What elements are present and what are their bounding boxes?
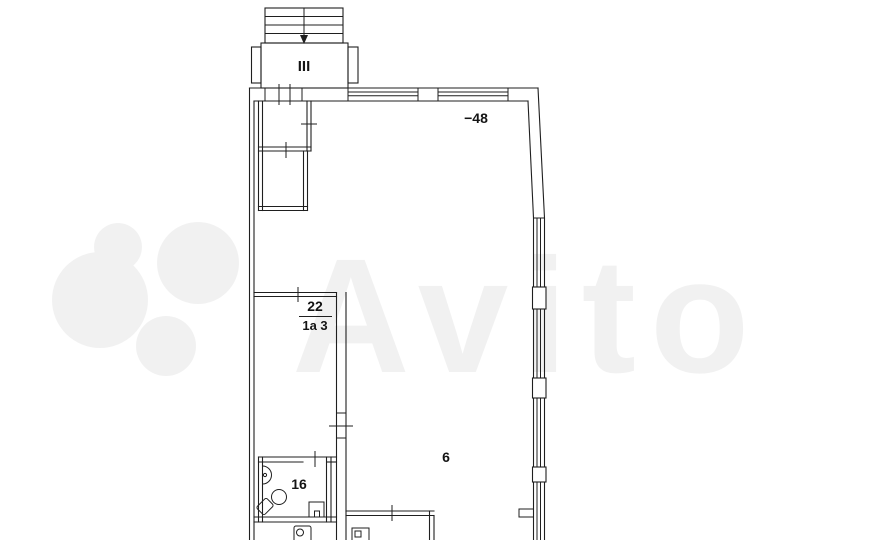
room-top-left-b xyxy=(259,142,308,211)
elevation-mark-label: −48 xyxy=(464,110,488,126)
fixture-icon xyxy=(309,502,324,517)
floor-plan-canvas: Avito III xyxy=(0,0,870,540)
watermark-logo-circle xyxy=(157,222,239,304)
window-pier xyxy=(533,467,547,482)
toilet-icon xyxy=(256,490,286,516)
landing-right-pilaster xyxy=(348,47,358,83)
top-wall-openings xyxy=(265,84,508,105)
fixture-icon xyxy=(294,526,311,540)
floor-plan-image: Avito III xyxy=(0,0,870,540)
bathroom-label: 16 xyxy=(291,476,307,492)
stairwell-label: III xyxy=(298,58,311,75)
watermark-text: Avito xyxy=(292,224,763,407)
staircase: III xyxy=(252,8,359,88)
sink-tap xyxy=(263,473,266,476)
wall-stub xyxy=(519,509,534,517)
window-pier xyxy=(533,287,547,309)
fixture-icon xyxy=(352,528,369,540)
closet-detail-label: 1а 3 xyxy=(302,318,327,333)
bathroom-16: 16 xyxy=(254,451,337,522)
room-top-left-a xyxy=(259,101,318,211)
watermark-logo-circle xyxy=(136,316,196,376)
main-room-label: 6 xyxy=(442,449,450,465)
closet-number-label: 22 xyxy=(307,298,323,314)
avito-watermark: Avito xyxy=(52,222,763,407)
watermark-logo-circle xyxy=(52,252,148,348)
landing-left-pilaster xyxy=(252,47,262,83)
window-pier xyxy=(533,378,547,398)
watermark-logo-circle xyxy=(94,223,142,271)
